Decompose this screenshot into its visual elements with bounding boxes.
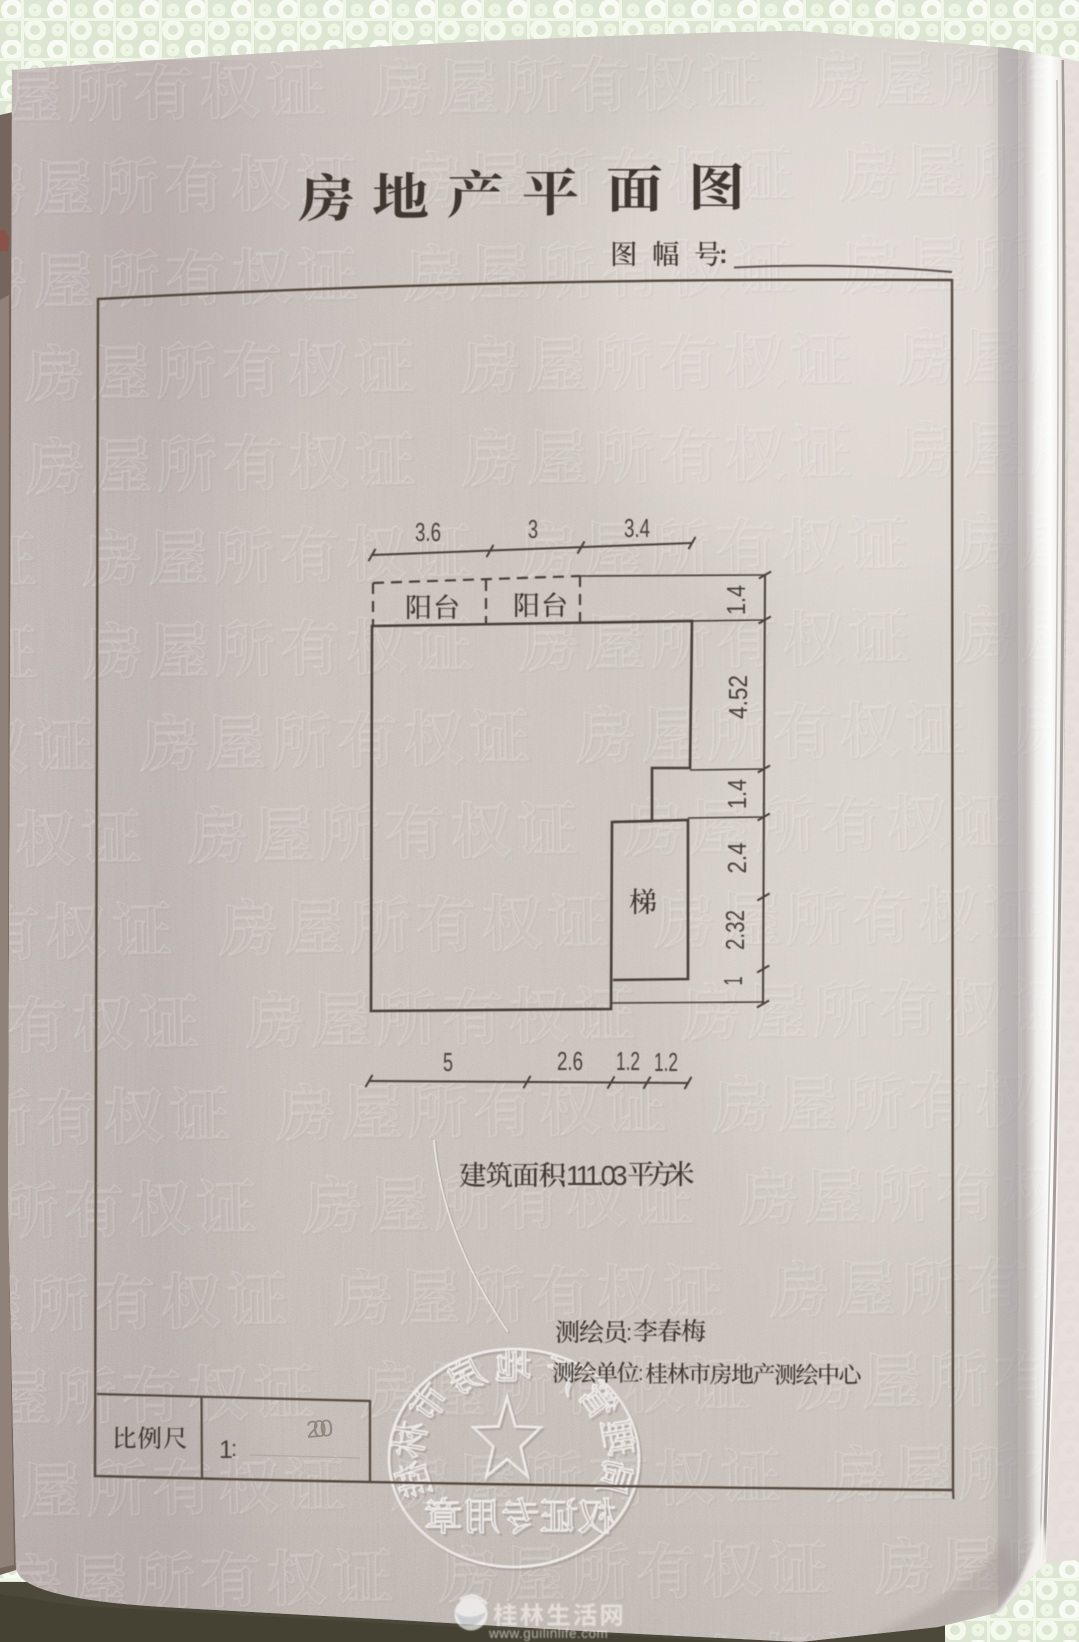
- svg-text::: :: [719, 239, 728, 269]
- svg-text:3: 3: [528, 514, 538, 544]
- svg-text:1.2: 1.2: [654, 1047, 678, 1077]
- svg-text:2.32: 2.32: [720, 910, 750, 950]
- svg-text:111.03: 111.03: [566, 1160, 627, 1191]
- svg-text:4.52: 4.52: [723, 675, 753, 719]
- svg-text::: :: [638, 1363, 644, 1385]
- svg-text:3.4: 3.4: [624, 513, 650, 543]
- svg-text::: :: [626, 1320, 632, 1345]
- svg-text:www.guilinlife.com: www.guilinlife.com: [488, 1626, 608, 1641]
- svg-text:200: 200: [305, 1415, 334, 1444]
- svg-text:2.6: 2.6: [557, 1046, 583, 1076]
- svg-text:1: 1: [718, 977, 748, 986]
- svg-text:2.4: 2.4: [722, 843, 752, 874]
- svg-text::: :: [231, 1436, 237, 1461]
- svg-text:3.6: 3.6: [415, 517, 441, 547]
- svg-text:5: 5: [443, 1047, 453, 1077]
- svg-text:1.4: 1.4: [721, 585, 751, 615]
- svg-text:1.2: 1.2: [616, 1046, 640, 1076]
- svg-text:1.4: 1.4: [722, 779, 752, 809]
